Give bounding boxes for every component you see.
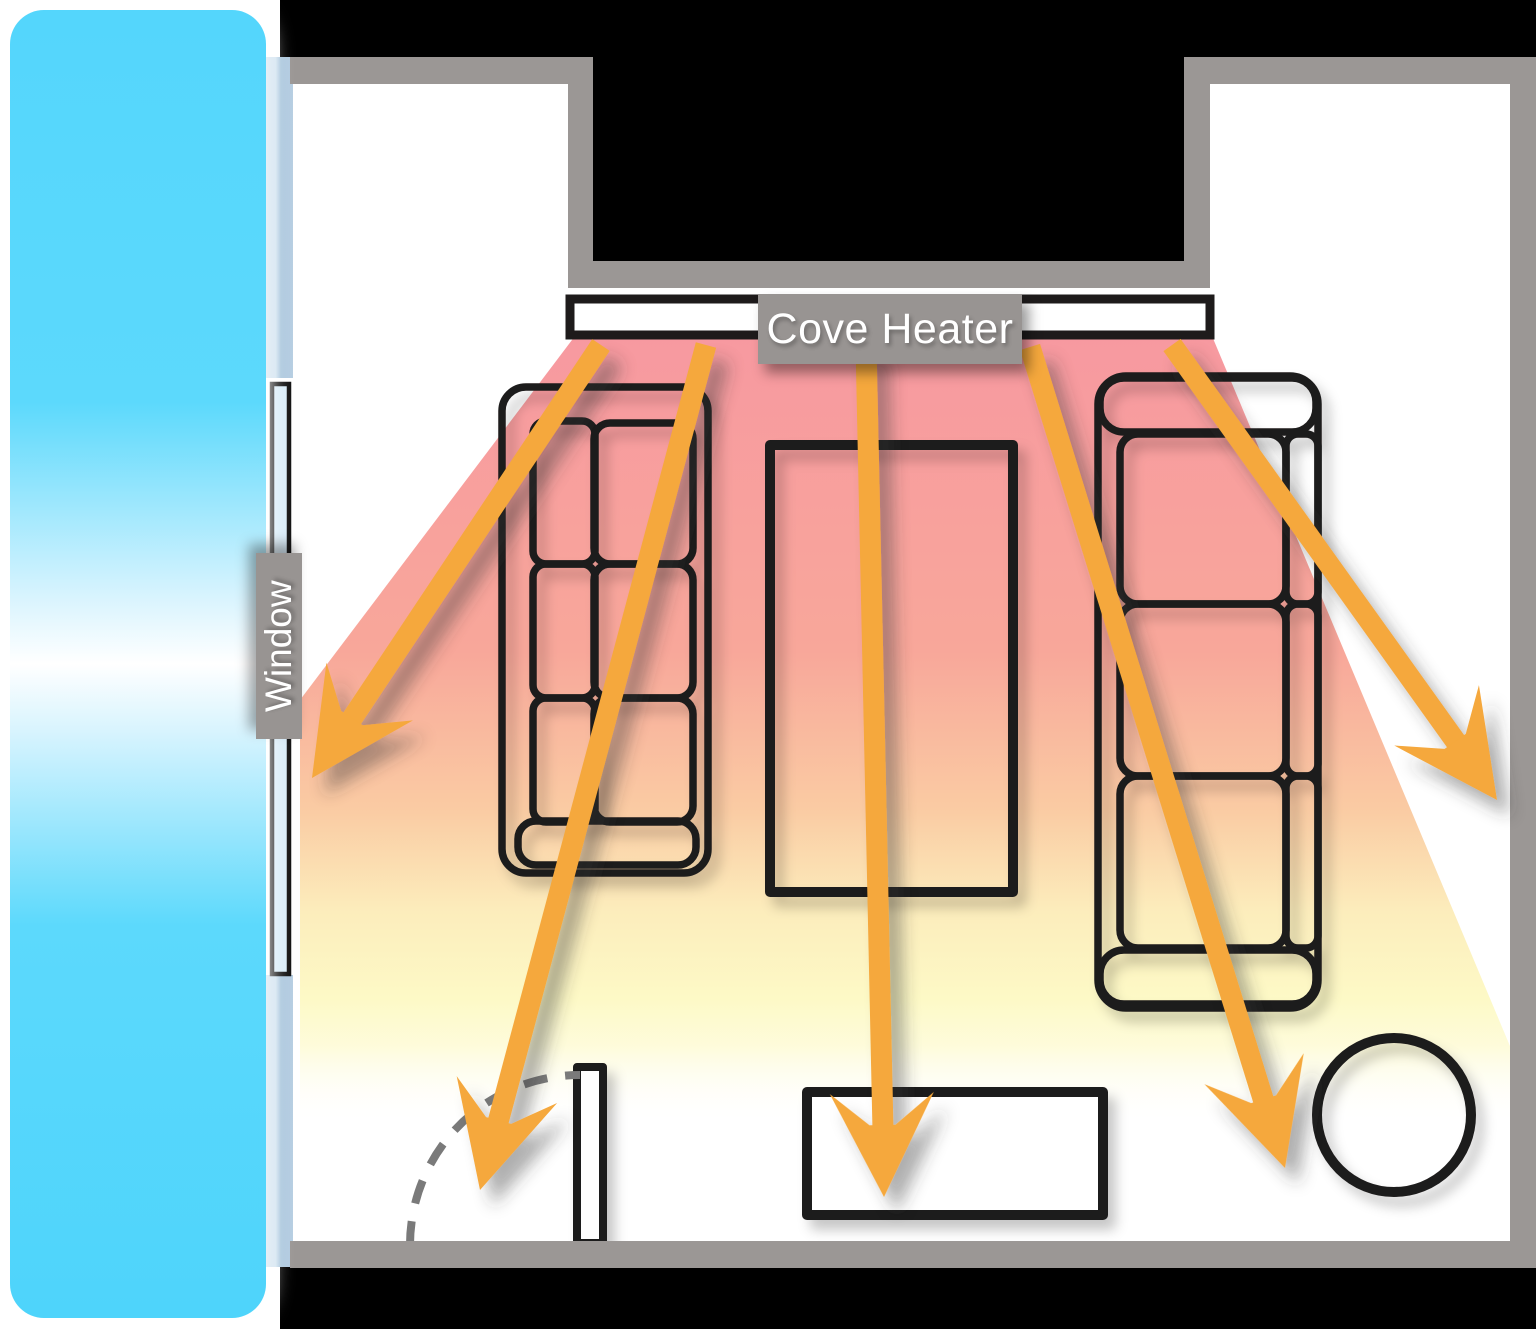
wall-right [1510,57,1536,1267]
wall-alcove-left [568,57,593,288]
cove-heater-label-text: Cove Heater [767,305,1014,354]
wall-alcove-bottom [568,261,1210,288]
exterior-bottom-band [280,1266,1536,1329]
cold-air-gradient [10,10,266,1318]
window-label-text: Window [258,580,300,712]
wall-top-left [290,57,593,84]
cold-air-column [6,6,270,1322]
window-frame-top [266,57,293,378]
wall-bottom [290,1241,1536,1268]
door-leaf [577,1067,603,1243]
window-frame-bottom [266,975,293,1267]
media-console [807,1092,1103,1215]
window-label: Window [256,553,302,739]
cove-heater-label: Cove Heater [758,294,1022,364]
wall-alcove-right [1184,57,1210,288]
floor-plan [0,0,1536,1329]
wall-top-right [1184,57,1536,84]
heating-diagram: Cove Heater Window [0,0,1536,1329]
exterior-alcove-block [593,0,1184,262]
